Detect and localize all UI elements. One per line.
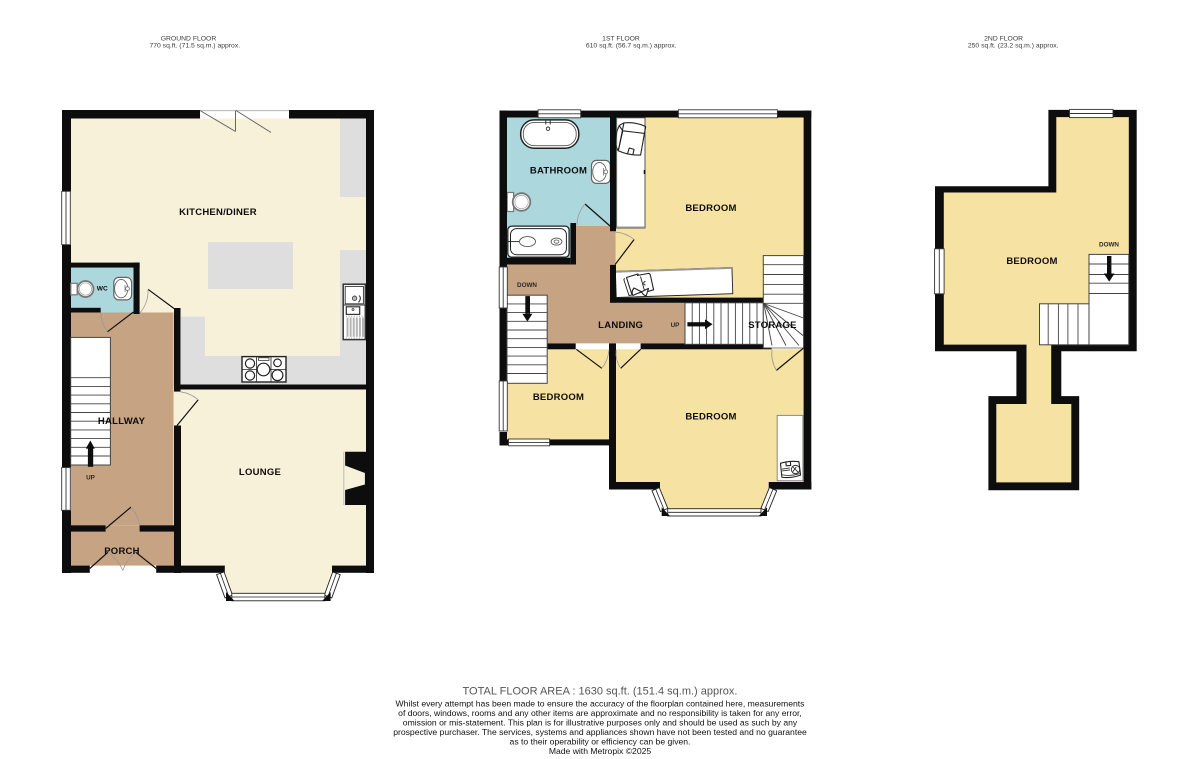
svg-text:BEDROOM: BEDROOM: [1006, 256, 1057, 267]
svg-text:Whilst every attempt has been: Whilst every attempt has been made to en…: [396, 699, 805, 709]
svg-text:KITCHEN/DINER: KITCHEN/DINER: [179, 207, 257, 218]
svg-text:LOUNGE: LOUNGE: [239, 467, 281, 478]
svg-text:TOTAL FLOOR AREA : 1630 sq.ft.: TOTAL FLOOR AREA : 1630 sq.ft. (151.4 sq…: [463, 686, 738, 698]
svg-text:WC: WC: [97, 286, 108, 293]
svg-text:UP: UP: [86, 475, 95, 482]
svg-text:Made with Metropix ©2025: Made with Metropix ©2025: [549, 746, 652, 756]
svg-text:2ND FLOOR: 2ND FLOOR: [984, 36, 1023, 43]
svg-text:BATHROOM: BATHROOM: [530, 166, 587, 177]
svg-text:1ST FLOOR: 1ST FLOOR: [602, 36, 640, 43]
svg-text:250 sq.ft. (23.2 sq.m.) approx: 250 sq.ft. (23.2 sq.m.) approx.: [968, 43, 1059, 50]
svg-text:omission or mis-statement. Thi: omission or mis-statement. This plan is …: [403, 718, 798, 728]
svg-text:PORCH: PORCH: [104, 546, 140, 557]
svg-text:BEDROOM: BEDROOM: [533, 392, 584, 403]
svg-text:UP: UP: [671, 322, 680, 329]
svg-text:of doors, windows, rooms and a: of doors, windows, rooms and any other i…: [398, 708, 802, 718]
svg-text:DOWN: DOWN: [517, 282, 537, 289]
svg-text:DOWN: DOWN: [1099, 241, 1119, 248]
svg-text:610 sq.ft. (56.7 sq.m.) approx: 610 sq.ft. (56.7 sq.m.) approx.: [586, 43, 677, 50]
svg-text:BEDROOM: BEDROOM: [685, 203, 736, 214]
svg-text:GROUND FLOOR: GROUND FLOOR: [161, 36, 217, 43]
svg-text:LANDING: LANDING: [598, 320, 643, 331]
svg-text:BEDROOM: BEDROOM: [685, 412, 736, 423]
svg-text:prospective purchaser. The ser: prospective purchaser. The services, sys…: [393, 727, 807, 737]
svg-text:770 sq.ft. (71.5 sq.m.) approx: 770 sq.ft. (71.5 sq.m.) approx.: [149, 43, 240, 50]
svg-text:STORAGE: STORAGE: [748, 320, 797, 331]
svg-text:as to their operability or eff: as to their operability or efficiency ca…: [510, 737, 691, 747]
svg-text:HALLWAY: HALLWAY: [98, 416, 146, 427]
